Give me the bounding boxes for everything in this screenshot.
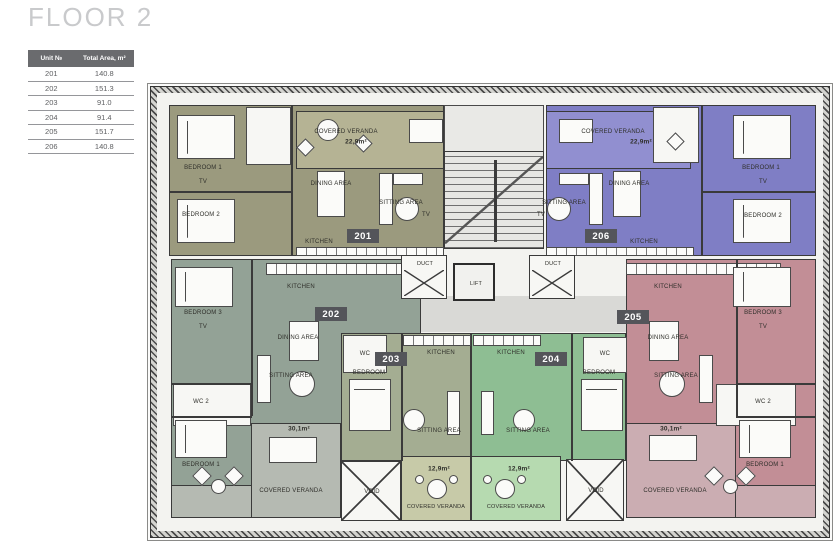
- room-label: SITTING AREA: [417, 428, 461, 434]
- sofa: [379, 173, 393, 225]
- sofa: [559, 173, 589, 185]
- room-label: BEDROOM 3: [744, 310, 782, 316]
- room-label: BEDROOM 1: [746, 462, 784, 468]
- kitchen-counter: [473, 335, 541, 346]
- room-label: SITTING AREA: [379, 200, 423, 206]
- unit-badge-206: 206: [585, 229, 617, 243]
- room-label: BEDROOM 1: [742, 165, 780, 171]
- void-label: VOID: [588, 488, 603, 494]
- table-row: 206 140.8: [28, 140, 134, 155]
- bed: [739, 420, 791, 458]
- room-label: COVERED VERANDA: [643, 488, 706, 494]
- table-row: 205 151.7: [28, 125, 134, 140]
- unit-badge-203: 203: [375, 352, 407, 366]
- room-label: SITTING AREA: [654, 373, 698, 379]
- x-cross: [404, 270, 444, 296]
- room-label: SITTING AREA: [269, 373, 313, 379]
- duct-label: DUCT: [545, 261, 561, 267]
- lift-label: LIFT: [470, 281, 482, 287]
- room-label: KITCHEN: [497, 350, 525, 356]
- void-label: VOID: [364, 489, 379, 495]
- area-label: 22,9m²: [345, 139, 367, 146]
- duct-right: DUCT: [529, 255, 575, 299]
- room-label: DINING AREA: [648, 335, 689, 341]
- area-label: 30,1m²: [660, 426, 682, 433]
- room-label: COVERED VERANDA: [487, 504, 545, 510]
- duct-left: DUCT: [401, 255, 447, 299]
- bed: [175, 420, 227, 458]
- bed: [733, 267, 791, 307]
- room-label: KITCHEN: [654, 284, 682, 290]
- tv-label: TV: [759, 324, 767, 330]
- wall: [736, 416, 816, 418]
- room-label: BEDROOM: [353, 370, 385, 376]
- room-label: COVERED VERANDA: [581, 129, 644, 135]
- page-title: FLOOR 2: [28, 2, 153, 33]
- unit-205-veranda-strip: [735, 485, 816, 518]
- room-label: COVERED VERANDA: [314, 129, 377, 135]
- room-label: SITTING AREA: [542, 200, 586, 206]
- wall: [251, 259, 253, 416]
- area-cell: 151.7: [75, 127, 134, 136]
- wall: [171, 416, 252, 418]
- bed: [733, 199, 791, 243]
- wall: [736, 383, 816, 385]
- veranda-table: [269, 437, 317, 463]
- veranda-round-table: [427, 479, 447, 499]
- unit-badge-205: 205: [617, 310, 649, 324]
- area-cell: 140.8: [75, 69, 134, 78]
- room-label: DINING AREA: [609, 181, 650, 187]
- wall: [171, 383, 252, 385]
- sofa: [699, 355, 713, 403]
- stair-rail: [494, 160, 497, 242]
- bed: [175, 267, 233, 307]
- column-header-unit: Unit №: [28, 55, 75, 62]
- unit-cell: 204: [28, 113, 75, 122]
- room-label: WC: [600, 351, 610, 357]
- room-label: BEDROOM 1: [184, 165, 222, 171]
- veranda-table: [409, 119, 443, 143]
- dining-table: [289, 321, 319, 361]
- sofa: [481, 391, 494, 435]
- unit-area-table: Unit № Total Area, m² 201 140.8 202 151.…: [28, 50, 134, 154]
- veranda-table: [649, 435, 697, 461]
- chair: [415, 475, 424, 484]
- veranda-round-table: [211, 479, 226, 494]
- room-label: KITCHEN: [305, 239, 333, 245]
- bed: [177, 199, 235, 243]
- wall: [291, 105, 293, 256]
- room-label: DINING AREA: [311, 181, 352, 187]
- unit-201-bathroom: [246, 107, 291, 165]
- veranda-round-table: [495, 479, 515, 499]
- chair: [449, 475, 458, 484]
- unit-cell: 202: [28, 84, 75, 93]
- area-cell: 91.4: [75, 113, 134, 122]
- lift: LIFT: [453, 263, 495, 301]
- chair: [517, 475, 526, 484]
- unit-cell: 201: [28, 69, 75, 78]
- room-label: BEDROOM 2: [744, 213, 782, 219]
- table-row: 203 91.0: [28, 96, 134, 111]
- unit-badge-204: 204: [535, 352, 567, 366]
- dining-table: [649, 321, 679, 361]
- room-label: BEDROOM 3: [184, 310, 222, 316]
- bed: [349, 379, 391, 431]
- unit-badge-201: 201: [347, 229, 379, 243]
- room-label: DINING AREA: [278, 335, 319, 341]
- duct-label: DUCT: [417, 261, 433, 267]
- entry-landing: [444, 105, 544, 152]
- chair: [483, 475, 492, 484]
- bed: [733, 115, 791, 159]
- area-label: 30,1m²: [288, 426, 310, 433]
- table-header-row: Unit № Total Area, m²: [28, 50, 134, 67]
- floor-plan-page: FLOOR 2 Unit № Total Area, m² 201 140.8 …: [0, 0, 835, 543]
- area-label: 12,9m²: [508, 466, 530, 473]
- floor-plan: LIFT DUCT DUCT VOID VOID: [150, 86, 830, 538]
- room-label: SITTING AREA: [506, 428, 550, 434]
- kitchen-counter: [266, 263, 421, 275]
- void-right: VOID: [566, 459, 624, 521]
- area-cell: 151.3: [75, 84, 134, 93]
- tv-label: TV: [199, 179, 207, 185]
- bed: [177, 115, 235, 159]
- tv-label: TV: [199, 324, 207, 330]
- unit-badge-202: 202: [315, 307, 347, 321]
- unit-cell: 203: [28, 98, 75, 107]
- area-label: 22,9m²: [630, 139, 652, 146]
- staircase: [444, 151, 544, 249]
- tv-label: TV: [422, 212, 430, 218]
- room-label: KITCHEN: [287, 284, 315, 290]
- table-row: 201 140.8: [28, 67, 134, 82]
- wall: [571, 333, 573, 461]
- room-label: COVERED VERANDA: [259, 488, 322, 494]
- room-label: BEDROOM: [583, 370, 615, 376]
- x-cross: [532, 270, 572, 296]
- wall: [169, 191, 291, 193]
- room-label: COVERED VERANDA: [407, 504, 465, 510]
- dining-table: [317, 171, 345, 217]
- room-label: WC 2: [193, 399, 209, 405]
- dining-table: [613, 171, 641, 217]
- void-left: VOID: [341, 461, 401, 521]
- area-cell: 140.8: [75, 142, 134, 151]
- wall: [701, 191, 816, 193]
- area-cell: 91.0: [75, 98, 134, 107]
- wall: [701, 105, 703, 256]
- table-row: 202 151.3: [28, 82, 134, 97]
- table-row: 204 91.4: [28, 111, 134, 126]
- unit-cell: 206: [28, 142, 75, 151]
- room-label: WC 2: [755, 399, 771, 405]
- corridor: [421, 296, 626, 332]
- sofa: [257, 355, 271, 403]
- sofa: [589, 173, 603, 225]
- bed: [581, 379, 623, 431]
- room-label: WC: [360, 351, 370, 357]
- tv-label: TV: [537, 212, 545, 218]
- room-label: KITCHEN: [427, 350, 455, 356]
- tv-label: TV: [759, 179, 767, 185]
- kitchen-counter: [403, 335, 471, 346]
- area-label: 12,9m²: [428, 466, 450, 473]
- room-label: BEDROOM 1: [182, 462, 220, 468]
- unit-cell: 205: [28, 127, 75, 136]
- room-label: KITCHEN: [630, 239, 658, 245]
- veranda-round-table: [723, 479, 738, 494]
- column-header-area: Total Area, m²: [75, 55, 134, 62]
- room-label: BEDROOM 2: [182, 212, 220, 218]
- sofa: [393, 173, 423, 185]
